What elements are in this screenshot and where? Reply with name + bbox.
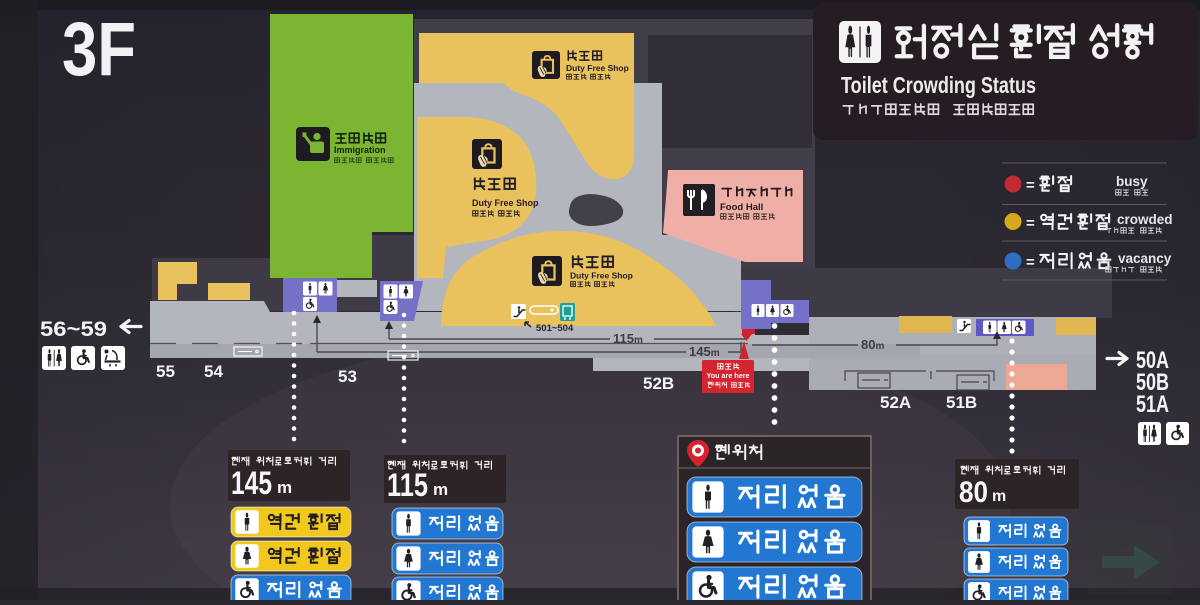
svg-text:Immigration: Immigration [334, 145, 386, 155]
svg-text:145: 145 [231, 465, 272, 501]
svg-text:=: = [1026, 254, 1035, 271]
svg-text:Food Hall: Food Hall [720, 202, 763, 213]
svg-text:Duty Free Shop: Duty Free Shop [472, 198, 539, 208]
svg-text:m: m [433, 480, 448, 499]
svg-text:55: 55 [156, 362, 175, 381]
svg-text:3F: 3F [62, 7, 136, 92]
svg-text:Duty Free Shop: Duty Free Shop [566, 63, 629, 73]
svg-text:m: m [992, 488, 1006, 505]
svg-text:56~59: 56~59 [40, 318, 107, 341]
svg-text:80: 80 [959, 476, 988, 509]
svg-text:52A: 52A [880, 393, 911, 412]
svg-text:115: 115 [387, 467, 428, 503]
svg-text:501~504: 501~504 [536, 323, 574, 334]
svg-text:=: = [1026, 177, 1035, 194]
svg-text:vacancy: vacancy [1118, 251, 1172, 266]
svg-text:53: 53 [338, 367, 357, 386]
svg-text:=: = [1026, 215, 1035, 232]
svg-text:m: m [277, 478, 292, 497]
svg-text:You are here: You are here [706, 371, 749, 380]
svg-text:busy: busy [1116, 174, 1148, 189]
svg-text:51A: 51A [1136, 391, 1169, 418]
svg-text:54: 54 [204, 362, 223, 381]
svg-text:crowded: crowded [1117, 212, 1173, 227]
svg-text:51B: 51B [946, 393, 977, 412]
svg-text:52B: 52B [643, 374, 674, 393]
svg-text:Toilet Crowding Status: Toilet Crowding Status [841, 72, 1036, 98]
svg-text:Duty Free Shop: Duty Free Shop [570, 271, 633, 281]
